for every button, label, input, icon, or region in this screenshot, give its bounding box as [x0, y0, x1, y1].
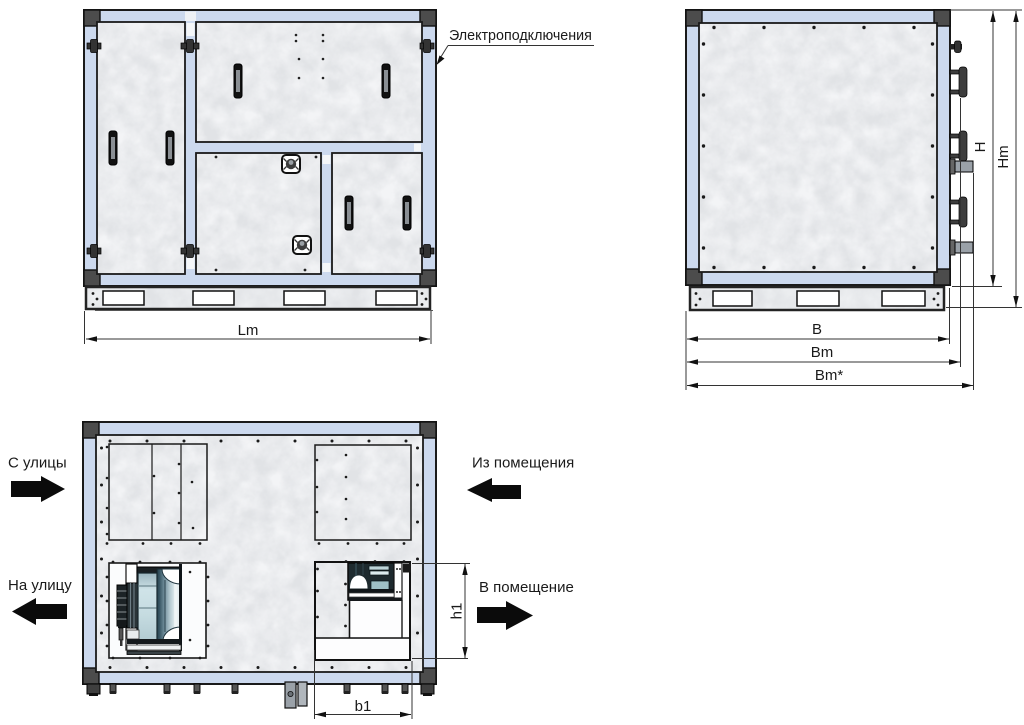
svg-text:h1: h1	[449, 603, 466, 620]
svg-text:H: H	[972, 142, 989, 153]
svg-text:С улицы: С улицы	[8, 455, 67, 472]
svg-text:Электроподключения: Электроподключения	[449, 28, 592, 44]
svg-text:Bm: Bm	[811, 344, 834, 361]
svg-text:Hm: Hm	[995, 145, 1012, 168]
svg-text:Bm*: Bm*	[815, 367, 844, 384]
svg-text:В помещение: В помещение	[479, 579, 574, 596]
svg-text:b1: b1	[355, 698, 372, 715]
svg-text:Из помещения: Из помещения	[472, 455, 574, 472]
svg-text:Lm: Lm	[238, 322, 259, 339]
svg-text:На улицу: На улицу	[8, 577, 72, 594]
svg-text:B: B	[812, 321, 822, 338]
